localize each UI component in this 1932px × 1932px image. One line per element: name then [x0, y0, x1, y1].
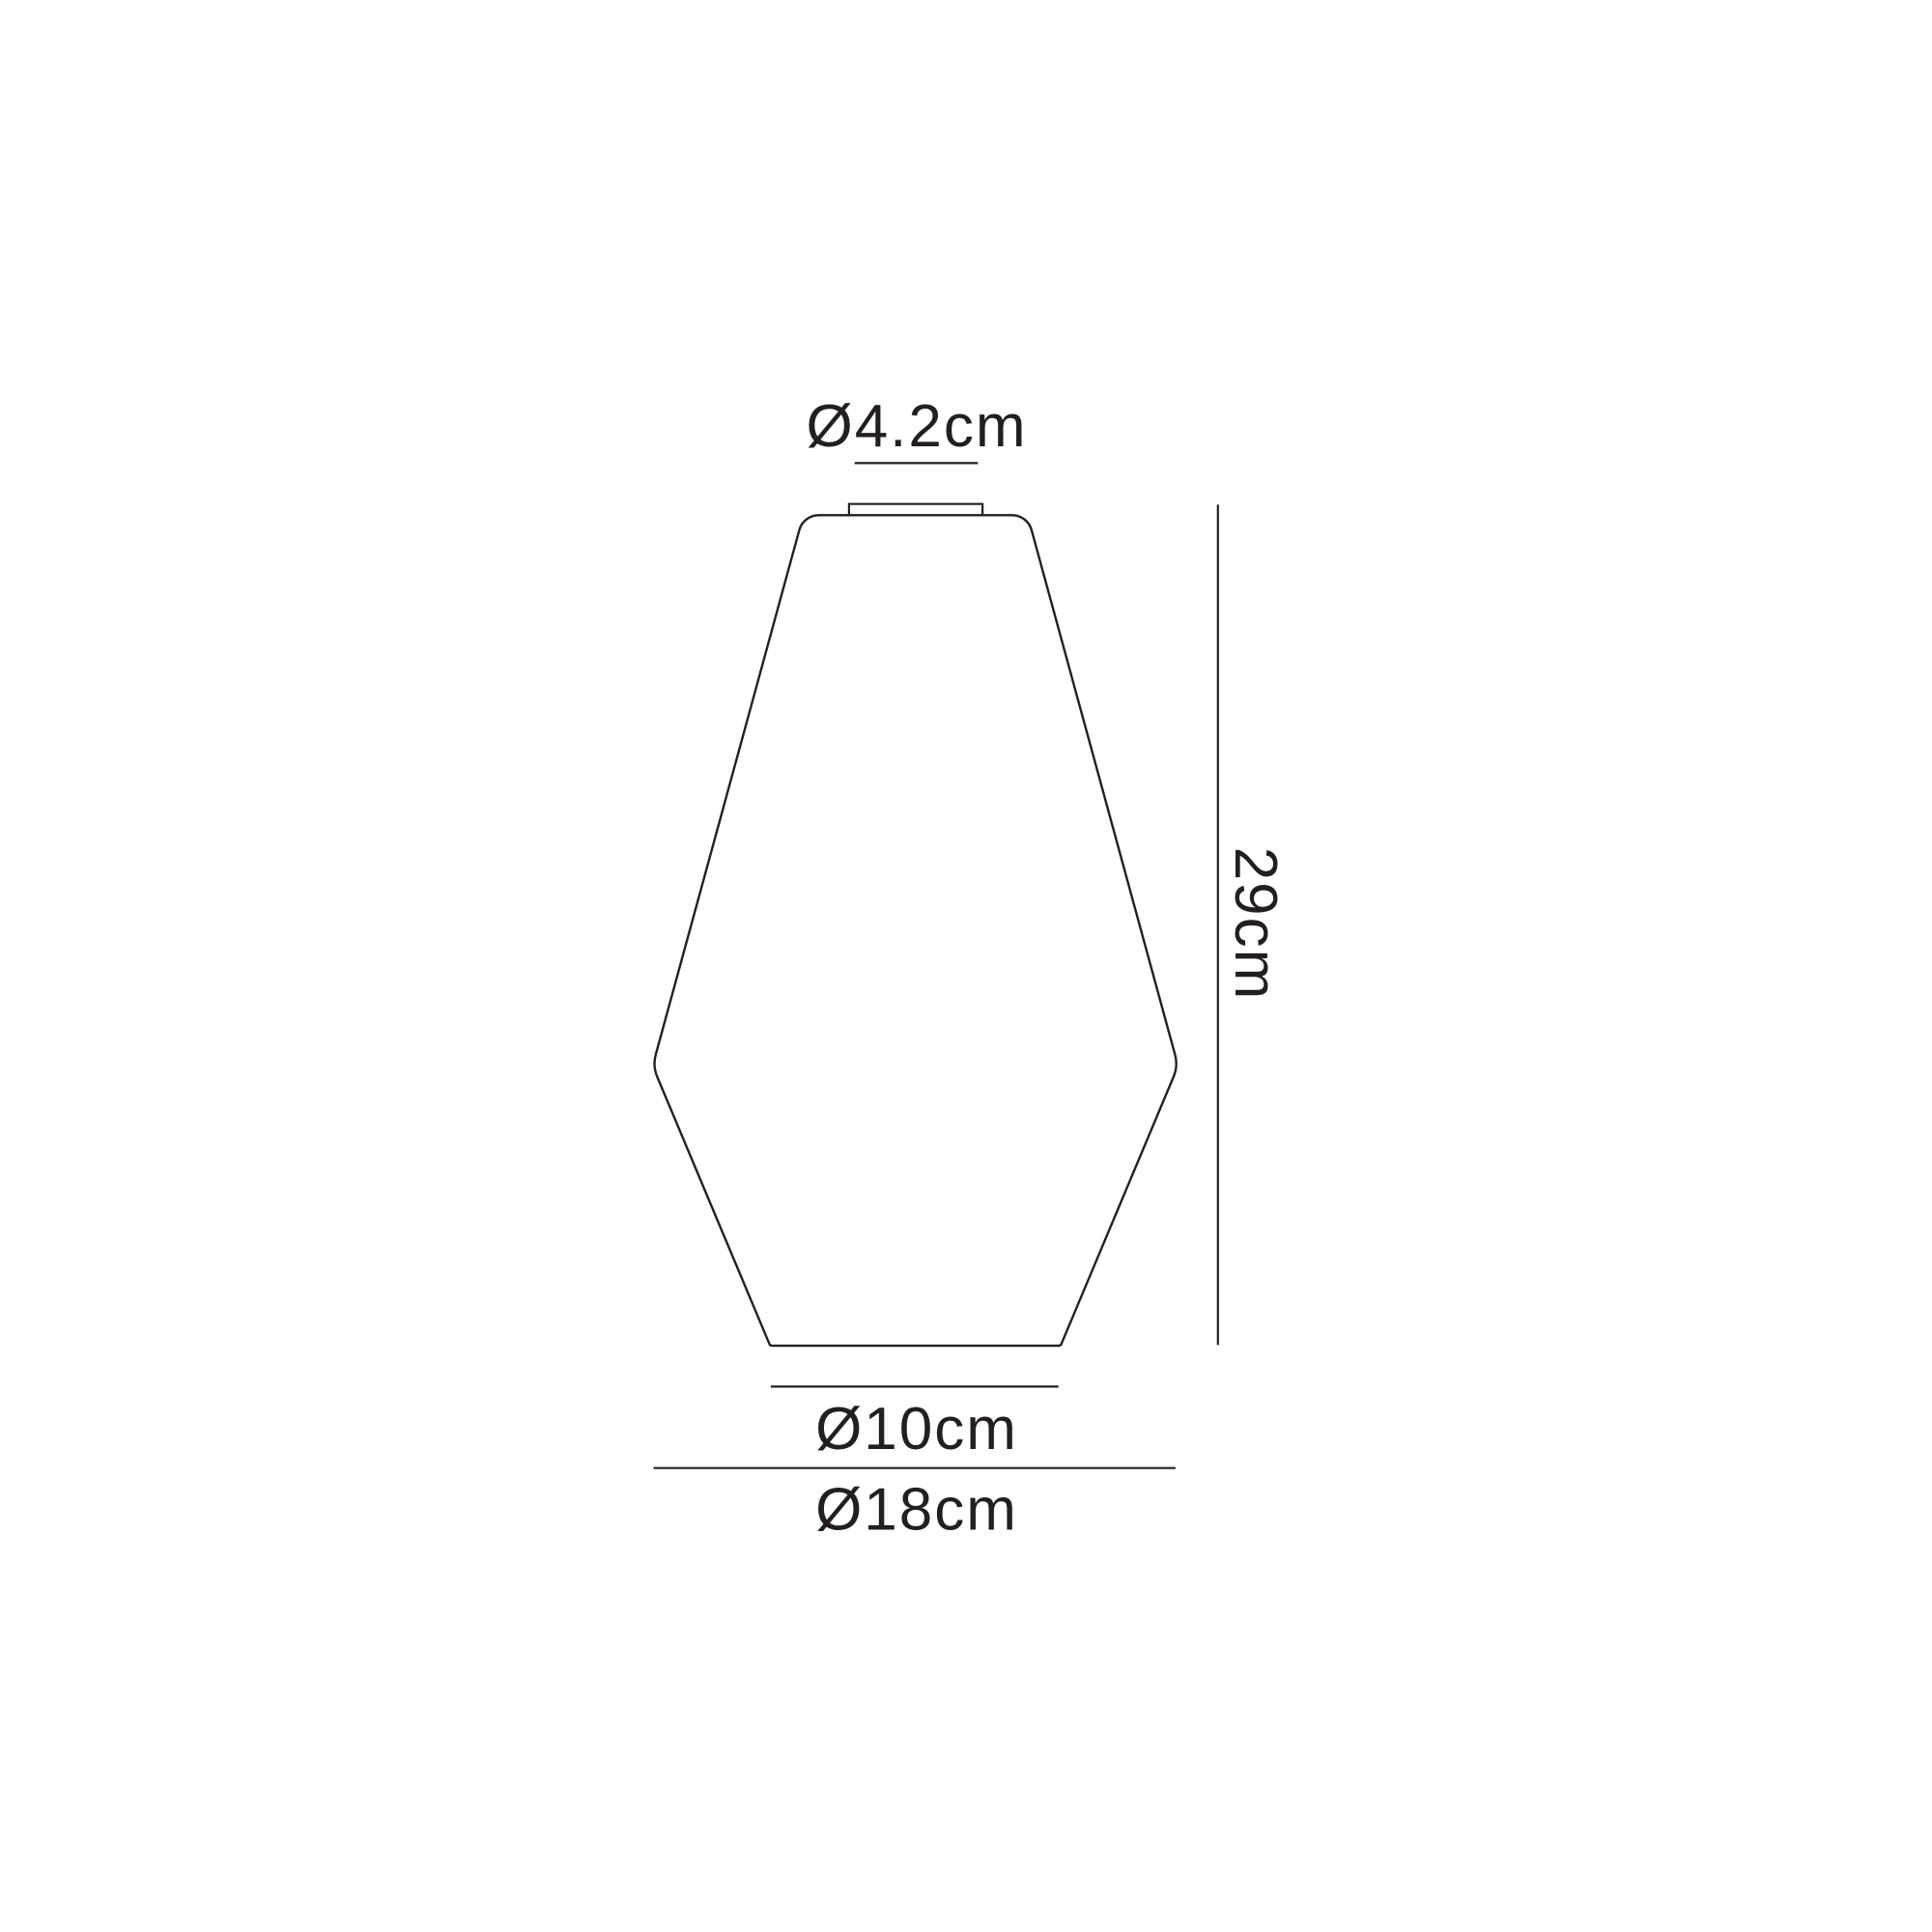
svg-text:Ø4.2cm: Ø4.2cm: [806, 393, 1027, 460]
svg-text:Ø10cm: Ø10cm: [815, 1396, 1018, 1463]
svg-text:29cm: 29cm: [1222, 847, 1289, 1002]
svg-text:Ø18cm: Ø18cm: [815, 1477, 1018, 1544]
